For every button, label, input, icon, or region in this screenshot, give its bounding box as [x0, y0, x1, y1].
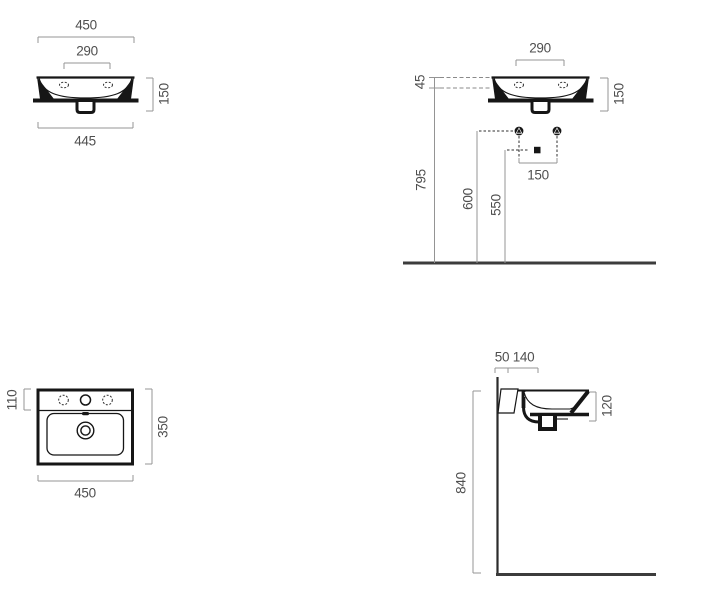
dim-install-fixing-spacing: 150: [519, 158, 557, 183]
optional-tap-hole: [103, 395, 113, 405]
basin-plan-outline: [38, 390, 133, 464]
dim-label-install-height: 150: [612, 83, 627, 105]
dim-label-side-drain-offset: 140: [513, 350, 535, 365]
dim-label-install-trap-height: 550: [489, 194, 504, 216]
dim-label-front-overall-width: 450: [75, 18, 97, 33]
tap-hole: [81, 395, 91, 405]
fixing-bolt-icon: [515, 127, 524, 136]
dim-front-overall-width: 450: [38, 18, 134, 44]
dim-label-side-basin-height: 120: [600, 395, 615, 417]
dim-install-rim-offset: 45: [413, 75, 493, 89]
dim-label-plan-overall-width: 450: [74, 486, 96, 501]
dim-label-side-rim-height: 840: [454, 472, 469, 494]
dim-label-install-rim-offset: 45: [413, 75, 428, 89]
drain-inner-circle: [81, 426, 90, 435]
dim-plan-overall-depth: 350: [145, 389, 171, 464]
drawing-svg: 450 290 150 445 290 45 150: [0, 0, 722, 600]
dim-plan-overall-width: 450: [38, 475, 133, 501]
basin-front-outline-install: [488, 77, 594, 113]
basin-side-section: [498, 389, 589, 431]
front-view: 450 290 150 445: [33, 18, 172, 149]
side-view: 50 140 120 840: [454, 350, 657, 575]
installation-view: 290 45 150 795 600 550: [403, 41, 656, 264]
fixing-points: [515, 127, 562, 160]
dim-label-install-fixing-spacing: 150: [527, 168, 549, 183]
dim-front-bottom-width: 445: [38, 122, 133, 149]
dim-plan-deck-depth: 110: [5, 389, 32, 410]
drain-outer-circle: [77, 422, 94, 439]
inner-bowl-outline: [47, 414, 124, 456]
dim-label-install-fixing-height: 600: [461, 188, 476, 210]
plan-view: 110 350 450: [5, 389, 171, 501]
basin-front-outline: [33, 77, 139, 113]
dim-label-install-tap-hole-spacing: 290: [529, 41, 551, 56]
dim-install-rim-level-height: 795: [414, 88, 435, 263]
dim-side-basin-height: 120: [589, 392, 615, 421]
dim-side-wall-drain-offsets: 50 140: [495, 350, 538, 374]
dim-label-front-bottom-width: 445: [74, 134, 96, 149]
dim-label-side-wall-offset: 50: [495, 350, 509, 365]
optional-tap-hole: [59, 395, 69, 405]
drain-point-icon: [534, 147, 541, 154]
dim-front-tap-hole-spacing: 290: [64, 44, 110, 70]
dim-install-trap-height: 550: [489, 150, 530, 263]
dim-front-height: 150: [146, 78, 172, 111]
dim-side-rim-height: 840: [454, 391, 482, 573]
dim-label-front-height: 150: [157, 83, 172, 105]
dim-install-tap-hole-spacing: 290: [516, 41, 564, 67]
fixing-bolt-icon: [553, 127, 562, 136]
dim-label-plan-overall-depth: 350: [156, 416, 171, 438]
dim-label-install-rim-level-height: 795: [414, 169, 429, 191]
dim-label-front-tap-hole-spacing: 290: [76, 44, 98, 59]
dim-label-plan-deck-depth: 110: [5, 390, 20, 411]
dim-install-height: 150: [600, 78, 627, 111]
technical-drawing-canvas: 450 290 150 445 290 45 150: [0, 0, 722, 600]
overflow-mark: [82, 412, 89, 415]
